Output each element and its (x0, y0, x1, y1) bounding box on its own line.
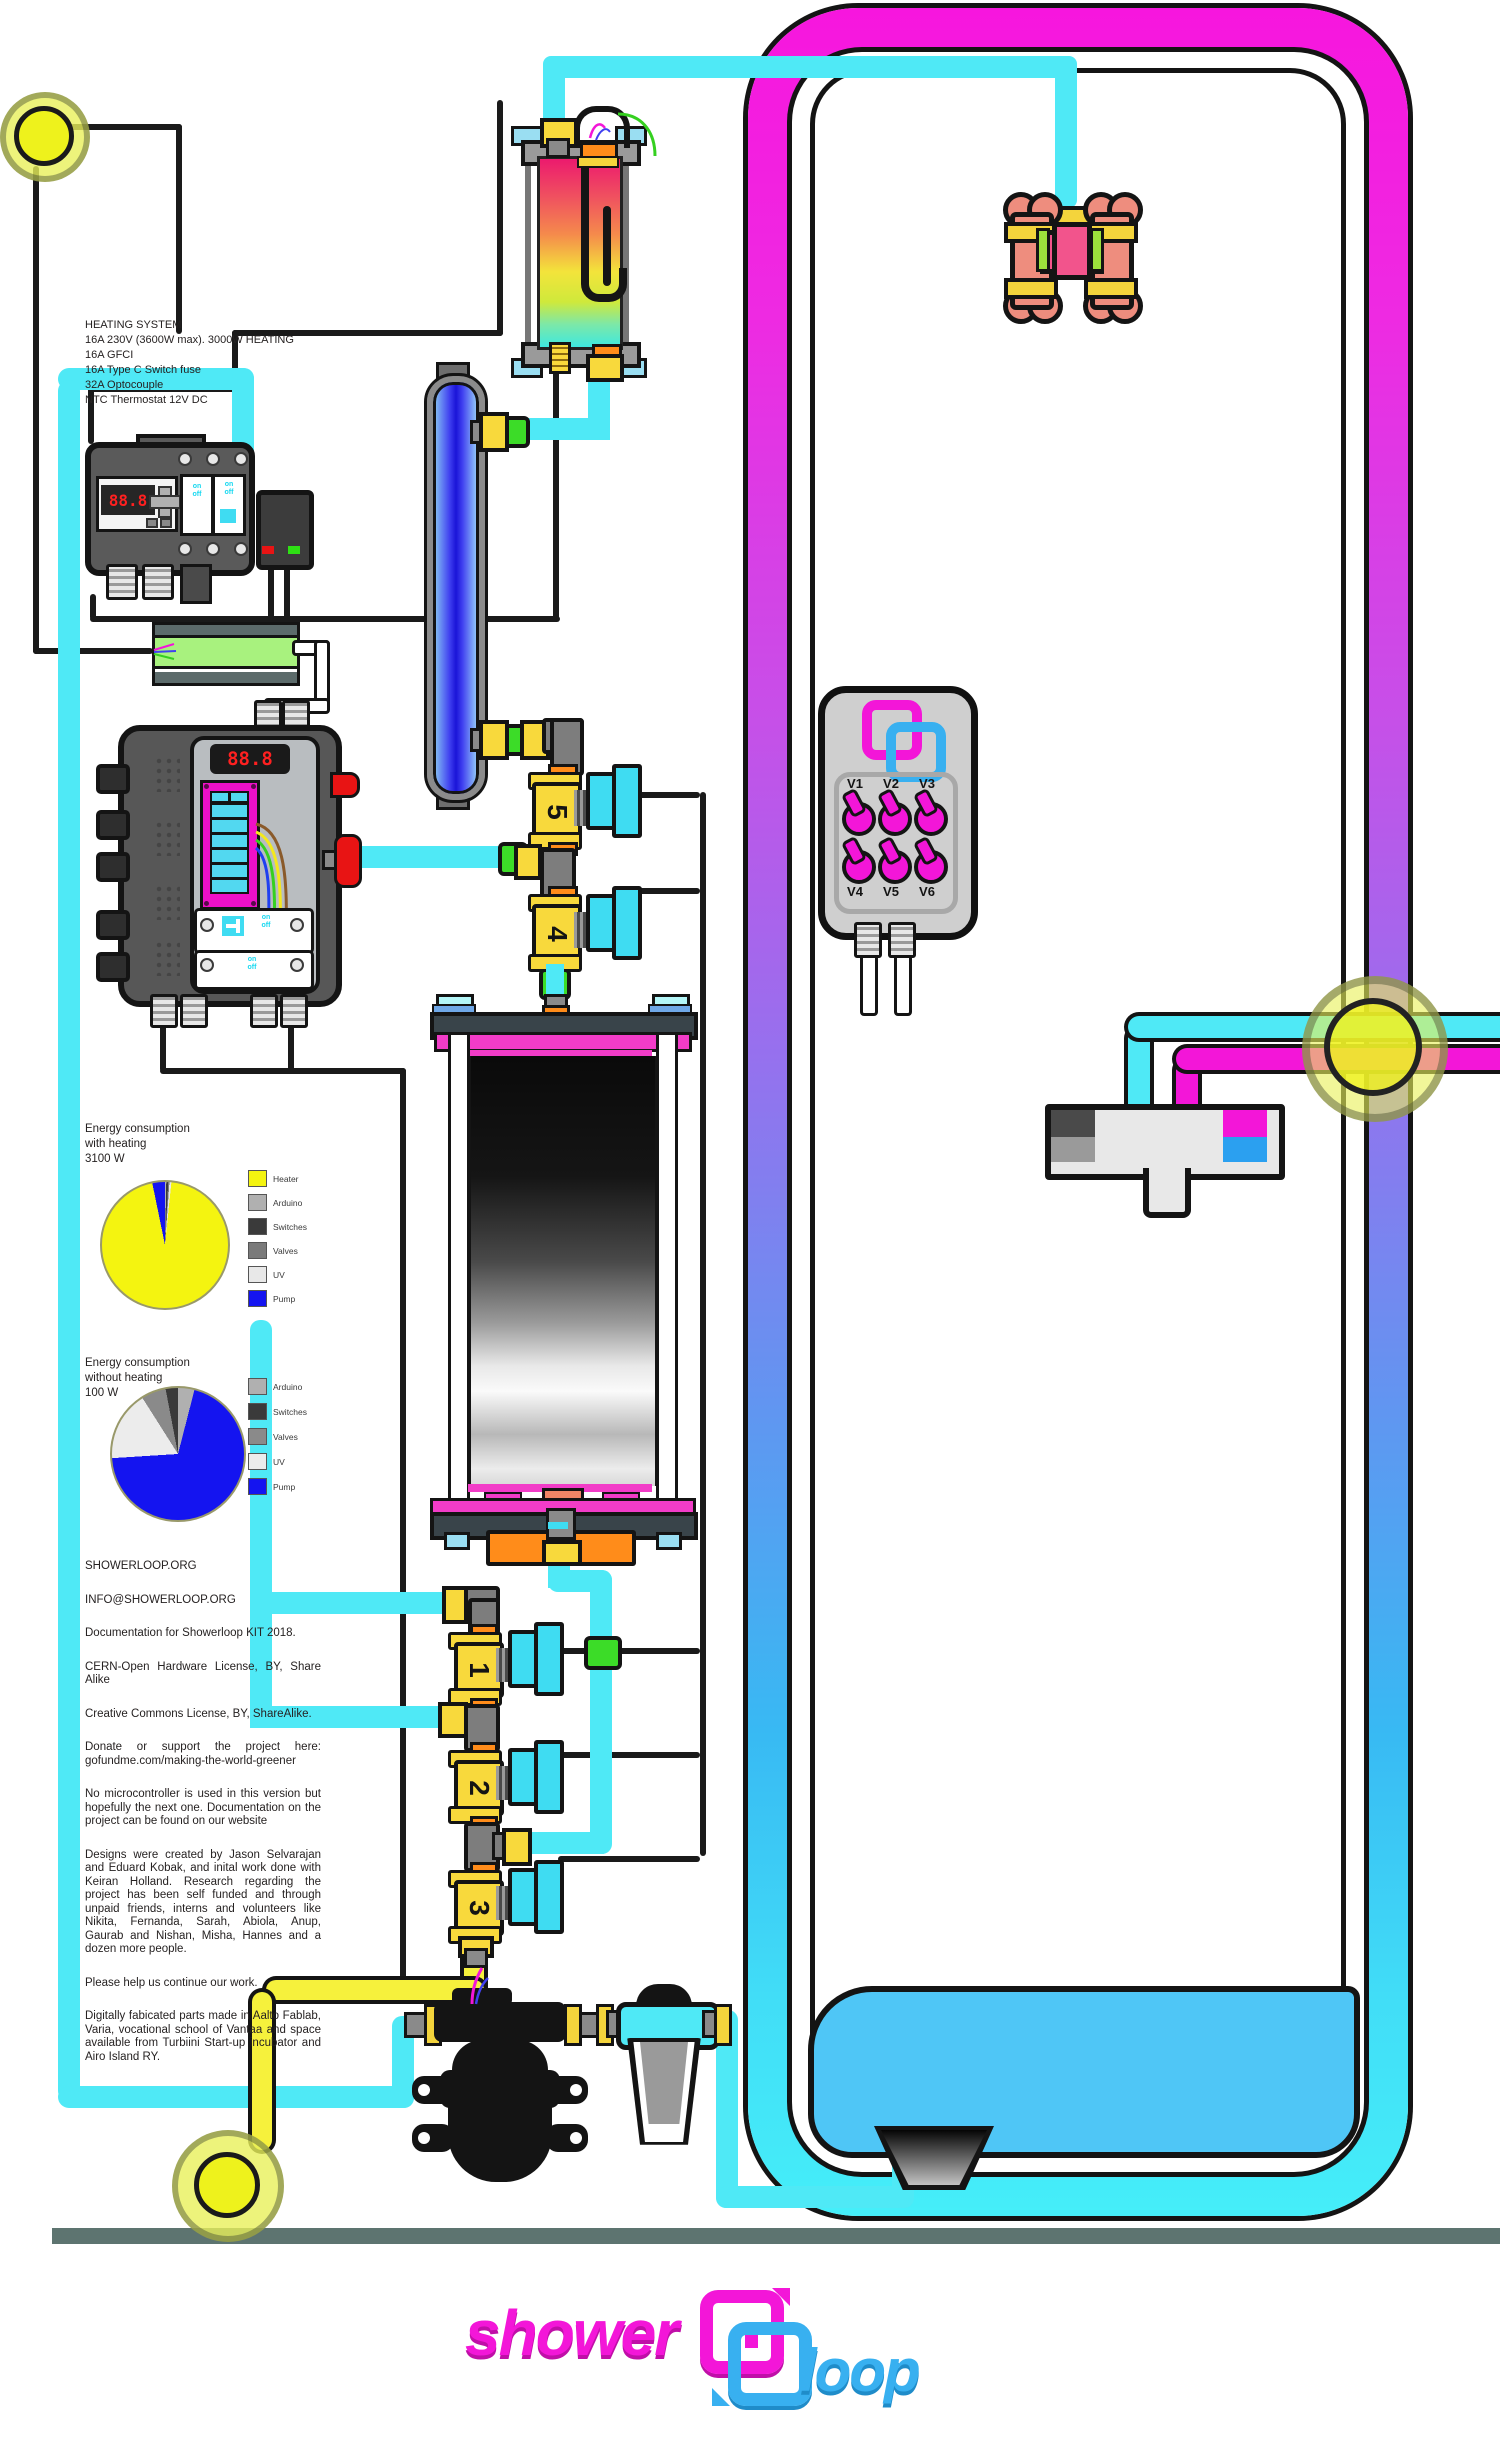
legend-swatch (248, 1266, 267, 1283)
legend-item: Arduino (248, 1378, 302, 1395)
heating-system-note: HEATING SYSTEM 16A 230V (3600W max). 300… (85, 318, 294, 408)
legend-item: Switches (248, 1403, 307, 1420)
legend-swatch (248, 1218, 267, 1235)
legend-item: Pump (248, 1290, 295, 1307)
ctrl2-bottom-gland (250, 994, 278, 1028)
legend-swatch (248, 1290, 267, 1307)
logo-word-loop: loop (800, 2336, 919, 2405)
ctrl2-red-knob[interactable] (330, 772, 360, 798)
showerhead-band (1084, 278, 1138, 299)
legend-item: Heater (248, 1170, 299, 1187)
screw (200, 918, 214, 932)
screw (206, 542, 220, 556)
filter-top-gasket (434, 1032, 692, 1052)
green-connector (584, 1636, 622, 1670)
relay (210, 791, 230, 803)
legend-swatch (248, 1170, 267, 1187)
on-off-label: onoff (240, 956, 264, 972)
ctrl2-plug (96, 764, 130, 794)
pie2-title-line: without heating (85, 1371, 190, 1386)
filter-foot-tab (444, 1532, 470, 1550)
filter-foot-tab (656, 1532, 682, 1550)
ctrl2-vent (154, 756, 180, 792)
screw (234, 452, 248, 466)
filter-outlet-fitting (542, 1540, 582, 1566)
showerhead-tee (1052, 222, 1092, 280)
heating-line: 16A Type C Switch fuse (85, 363, 294, 378)
controller1-dpad (149, 495, 181, 509)
pipe-filter-out (590, 1570, 612, 1854)
ctrl2-display-value: 88.8 (227, 748, 273, 770)
legend-label: Heater (273, 1174, 299, 1184)
heating-line: 32A Optocouple (85, 378, 294, 393)
valve-box-label-v6: V6 (912, 884, 942, 899)
legend-swatch (248, 1478, 267, 1495)
mixer-end-magenta (1223, 1110, 1267, 1137)
legend-label: UV (273, 1457, 285, 1467)
relay (229, 791, 249, 803)
ctrl2-plug (96, 910, 130, 940)
valve2-ribs (496, 1766, 508, 1800)
legend-item: Valves (248, 1428, 298, 1445)
legend-item: UV (248, 1266, 285, 1283)
info-paragraph: CERN-Open Hardware License, BY, Share Al… (85, 1661, 321, 1688)
relay (210, 863, 249, 879)
pump-wires (458, 1960, 502, 2006)
pipe-mixer-cyan (1128, 1030, 1150, 1108)
pump-ear (412, 2124, 454, 2152)
valve-box-gland (888, 922, 916, 958)
prefilter-bowl (624, 2038, 704, 2148)
pump-head-tube (434, 2002, 566, 2042)
info-paragraph: Designs were created by Jason Selvarajan… (85, 1849, 321, 1957)
controller1-display: 88.8 (101, 485, 155, 515)
pie2-title-line: Energy consumption (85, 1356, 190, 1371)
valve4-coil (612, 886, 642, 960)
legend-label: Arduino (273, 1382, 302, 1392)
cable-coil-bus (700, 792, 706, 1856)
info-paragraph: Donate or support the project here: gofu… (85, 1741, 321, 1768)
screw (290, 958, 304, 972)
heater-thermo-coil (549, 342, 571, 374)
relay-led-red (262, 546, 274, 554)
valve-box-label-v5: V5 (876, 884, 906, 899)
cable-heater-left (497, 100, 503, 336)
pie2-chart (110, 1386, 246, 1522)
pump-collar (440, 2070, 560, 2108)
wall-port-right-inner (1324, 998, 1422, 1096)
controller1-button[interactable] (146, 518, 158, 528)
mixer-end-gray (1051, 1137, 1095, 1162)
tee-right-fitting (502, 1828, 532, 1866)
valve3-coil (534, 1860, 564, 1934)
pump-ear (546, 2076, 588, 2104)
showerhead-ring (1036, 228, 1050, 272)
ctrl2-bottom-gland (180, 994, 208, 1028)
heater-terminal-plate (577, 156, 619, 168)
relay (210, 803, 249, 819)
legend-label: UV (273, 1270, 285, 1280)
info-paragraph: SHOWERLOOP.ORG (85, 1560, 321, 1574)
pipe-suction-vertical (58, 380, 80, 2102)
relay (210, 833, 249, 849)
mixer-spout (1143, 1168, 1191, 1218)
tee-left-fitting (514, 844, 542, 880)
pump-barrel (448, 2104, 552, 2182)
controller1-switch-panel: onoff (212, 474, 246, 536)
info-paragraph: Please help us continue our work. (85, 1977, 321, 1991)
relay-led-green (288, 546, 300, 554)
pump-ear-hole (418, 2132, 430, 2144)
cable-gland (142, 564, 174, 600)
info-paragraph: Documentation for Showerloop KIT 2018. (85, 1627, 321, 1641)
pump-ear (412, 2076, 454, 2104)
on-off-label: onoff (215, 481, 243, 497)
showerhead-band (1004, 278, 1058, 299)
screw (206, 452, 220, 466)
valve-box-gland (854, 922, 882, 958)
heater-tie-rod (623, 156, 629, 344)
breaker-toggle[interactable] (222, 916, 244, 936)
pie1-chart (100, 1180, 230, 1310)
rocker-switch[interactable] (220, 509, 236, 523)
pump-ear-hole (570, 2084, 582, 2096)
cable-bottom-bus (160, 1068, 406, 1074)
ctrl2-plug (96, 952, 130, 982)
legend-label: Arduino (273, 1198, 302, 1208)
on-off-label: onoff (254, 914, 278, 930)
legend-swatch (248, 1403, 267, 1420)
legend-swatch (248, 1428, 267, 1445)
heating-line: HEATING SYSTEM (85, 318, 294, 333)
legend-swatch (248, 1453, 267, 1470)
cable-gland (106, 564, 138, 600)
pipe-filter-out (524, 1832, 604, 1854)
relay (210, 878, 249, 894)
info-paragraph: No microcontroller is used in this versi… (85, 1788, 321, 1829)
uv-port-fitting (479, 412, 509, 452)
cable-coil-stub (558, 1752, 700, 1758)
screw (290, 918, 304, 932)
heating-element-bend (581, 268, 627, 302)
valve1-coil (534, 1622, 564, 1696)
ctrl2-vent (154, 884, 180, 920)
valve-box-cable (894, 950, 912, 1016)
legend-item: Arduino (248, 1194, 302, 1211)
legend-label: Valves (273, 1432, 298, 1442)
legend-label: Valves (273, 1246, 298, 1256)
cable-port-down (176, 124, 182, 334)
legend-item: UV (248, 1453, 285, 1470)
legend-label: Switches (273, 1222, 307, 1232)
heater-tie-rod (525, 156, 531, 344)
ctrl2-display: 88.8 (210, 744, 290, 774)
floor-line (52, 2228, 1500, 2244)
filter-tie-column (448, 1032, 470, 1524)
filter-tie-column (656, 1032, 678, 1524)
legend-item: Switches (248, 1218, 307, 1235)
valve5-coil (612, 764, 642, 838)
filter-drain-ring (548, 1522, 568, 1529)
pcb-screw (204, 784, 209, 789)
ctrl2-plug (96, 810, 130, 840)
filter-body (468, 1056, 658, 1486)
pie1-title: Energy consumption with heating 3100 W (85, 1122, 190, 1167)
wall-port-top-left-inner (14, 106, 74, 166)
ctrl2-red-handle[interactable] (334, 834, 362, 888)
pipe-supply-top (543, 56, 1077, 78)
shower-drain (874, 2126, 994, 2190)
legend-item: Pump (248, 1478, 295, 1495)
valve-box-cable (860, 950, 878, 1016)
legend-swatch (248, 1378, 267, 1395)
screw (178, 452, 192, 466)
ctrl2-vent (154, 940, 180, 976)
valve5-ribs (574, 790, 586, 826)
pipe-suction-bottom (58, 2086, 414, 2108)
info-text-column: SHOWERLOOP.ORG INFO@SHOWERLOOP.ORG Docum… (85, 1560, 321, 2077)
showerhead-ring (1090, 228, 1104, 272)
mixer-end-blue (1223, 1137, 1267, 1162)
pie1-title-line: Energy consumption (85, 1122, 190, 1137)
screw (234, 542, 248, 556)
legend-label: Switches (273, 1407, 307, 1417)
wall-port-bottom-left-inner (194, 2152, 260, 2218)
heating-line: NTC Thermostat 12V DC (85, 393, 294, 408)
relay-box (256, 490, 314, 570)
legend-item: Valves (248, 1242, 298, 1259)
cable-ctrl2-down (288, 1022, 294, 1072)
cable-port-left-down (33, 166, 39, 654)
cable-psu-input (33, 648, 153, 654)
breaker-toggle-mark (236, 919, 240, 933)
psu-bottom-band (152, 666, 300, 686)
legend-label: Pump (273, 1482, 295, 1492)
valve2-coil (534, 1740, 564, 1814)
relay (210, 848, 249, 864)
uv-port-fitting (479, 720, 509, 760)
ctrl2-bottom-gland (280, 994, 308, 1028)
controller1-switch-panel: onoff (180, 474, 214, 536)
controller1-display-value: 88.8 (109, 491, 148, 510)
cable-ctrl2-down (160, 1022, 166, 1072)
legend-swatch (248, 1194, 267, 1211)
pie1-title-line: with heating (85, 1137, 190, 1152)
heating-line: 16A 230V (3600W max). 3000W HEATING (85, 333, 294, 348)
info-paragraph: Digitally fabicated parts made in Aalto … (85, 2010, 321, 2064)
pie1-title-line: 3100 W (85, 1152, 190, 1167)
legend-swatch (248, 1242, 267, 1259)
relay (210, 818, 249, 834)
diagram-canvas: 5 4 1 (0, 0, 1500, 2456)
cable-coil-stub (558, 1648, 700, 1654)
cable-left-riser (400, 1068, 406, 1984)
screw (178, 542, 192, 556)
pipe-uv-heater (588, 372, 610, 440)
mixer-end-dark (1051, 1110, 1095, 1137)
controller1-button[interactable] (160, 518, 172, 528)
ctrl2-plug (96, 852, 130, 882)
prefilter-ring (714, 2004, 732, 2046)
pump-ear (546, 2124, 588, 2152)
psu-wires (152, 638, 192, 664)
pipe-valve4-filter (546, 964, 564, 994)
pump-ear-hole (570, 2132, 582, 2144)
cable-heater-coil (553, 368, 559, 620)
ctrl2-relay-pcb (200, 780, 260, 910)
heater-outlet-fitting (586, 354, 624, 382)
ctrl2-bottom-gland (150, 994, 178, 1028)
heating-line: 16A GFCI (85, 348, 294, 363)
on-off-label: onoff (183, 483, 211, 499)
logo-word-shower: shower (465, 2296, 677, 2370)
tee-left-fitting (438, 1702, 468, 1738)
cable-gland-dark (180, 564, 212, 604)
screw (200, 958, 214, 972)
valve4-ribs (574, 912, 586, 948)
pump-ring (564, 2004, 582, 2046)
cable-coil-stub (558, 1856, 700, 1862)
valve1-ribs (496, 1648, 508, 1682)
valve-box-label-v4: V4 (840, 884, 870, 899)
ctrl2-vent (154, 820, 180, 856)
pcb-screw (251, 784, 256, 789)
pump-ear-hole (418, 2084, 430, 2096)
pipe-supply-drop (1055, 56, 1077, 208)
pipe-bypass (334, 846, 522, 868)
valve3-ribs (496, 1886, 508, 1920)
pcb-screw (204, 901, 209, 906)
legend-label: Pump (273, 1294, 295, 1304)
logo-icon-overlap-patch (745, 2335, 758, 2348)
info-paragraph: Creative Commons License, BY, ShareAlike… (85, 1708, 321, 1722)
info-paragraph: INFO@SHOWERLOOP.ORG (85, 1594, 321, 1608)
